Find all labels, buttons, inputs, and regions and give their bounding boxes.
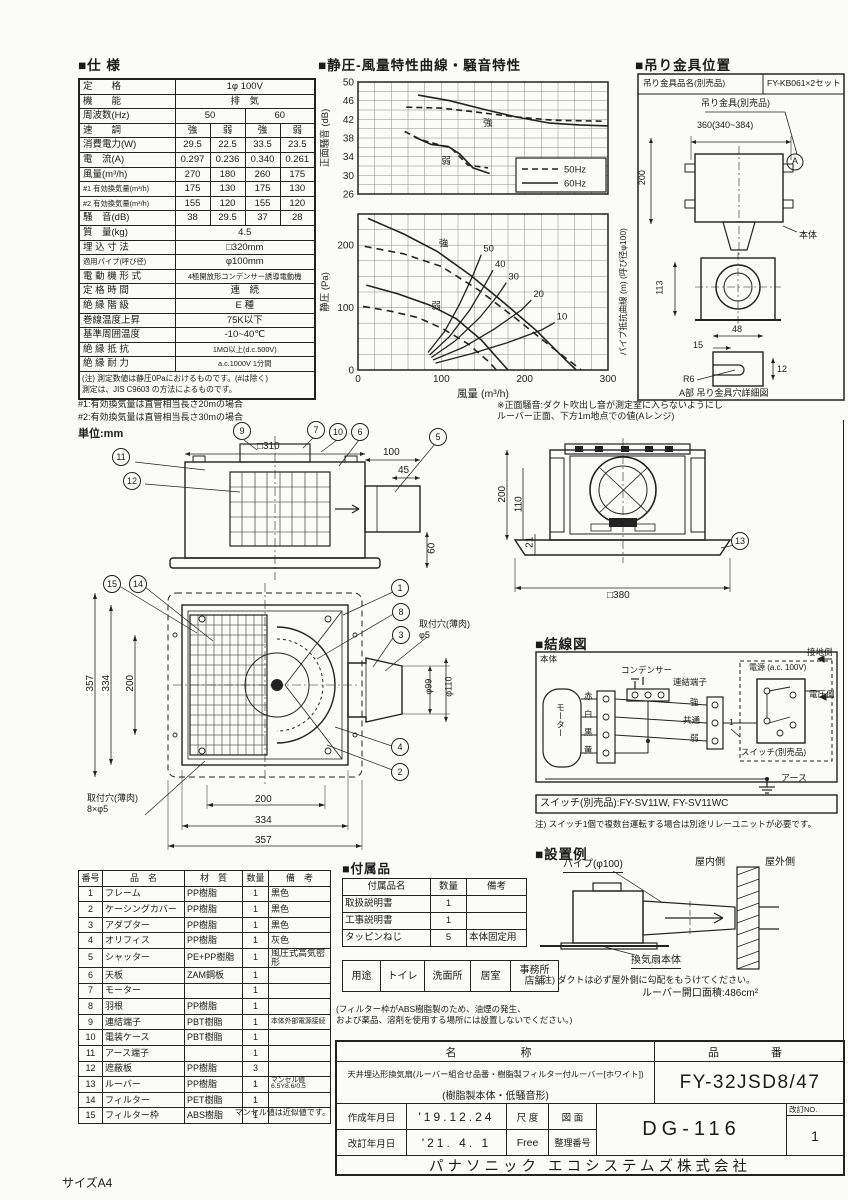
svg-text:50Hz: 50Hz	[564, 165, 586, 176]
table-cell: オリフィス	[103, 933, 185, 949]
dim-200-rear: 200	[497, 486, 510, 503]
parts-table: 番号品 名材 質数量備 考1フレームPP樹脂1黒色2ケーシングカバーPP樹脂1黒…	[78, 870, 331, 1124]
spec-value: 0.297	[175, 152, 210, 167]
spec-value: φ100mm	[175, 255, 315, 270]
table-cell: 7	[79, 983, 103, 999]
spec-label: #1 有効換気量(m³/h)	[79, 182, 175, 197]
dim-380: □380	[607, 590, 630, 603]
part-number-value: FY-32JSD8/47	[655, 1062, 845, 1104]
spec-value: 175	[280, 167, 315, 182]
svg-text:パイプ抵抗曲線 (m) (呼び径φ100): パイプ抵抗曲線 (m) (呼び径φ100)	[618, 228, 628, 356]
dim-h200: 200	[255, 794, 272, 807]
wire-yellow: 黄	[584, 745, 593, 756]
spec-section-title: ■仕 様	[78, 54, 121, 74]
table-cell: PP樹脂	[185, 999, 243, 1015]
dim-h334: 334	[255, 815, 272, 828]
table-cell: 1	[243, 1045, 269, 1061]
table-cell: PP樹脂	[185, 917, 243, 933]
table-cell: 1	[243, 999, 269, 1015]
revision-label: 改訂NO.	[787, 1104, 843, 1116]
rear-view-drawing	[495, 438, 750, 606]
table-cell: 1	[243, 967, 269, 983]
table-cell: ケーシングカバー	[103, 902, 185, 918]
svg-text:38: 38	[343, 134, 355, 145]
svg-text:強: 強	[439, 237, 449, 249]
spec-value: 22.5	[210, 138, 245, 153]
spec-value: E 種	[175, 298, 315, 313]
svg-text:弱: 弱	[431, 301, 441, 312]
spec-label: 巻線温度上昇	[79, 313, 175, 328]
spec-label: 速 調	[79, 123, 175, 138]
table-cell	[269, 1045, 331, 1061]
table-row: タッピンねじ5本体固定用	[343, 930, 527, 947]
table-cell: 1	[243, 1014, 269, 1030]
table-cell: 灰色	[269, 933, 331, 949]
install-note: 注) ダクトは必ず屋外側に勾配をもうけてください。	[543, 975, 755, 986]
accessories-table: 付属品名数量備考取扱説明書1工事説明書1タッピンねじ5本体固定用	[342, 878, 527, 947]
table-cell: 14	[79, 1092, 103, 1108]
table-cell: 11	[79, 1045, 103, 1061]
svg-text:26: 26	[343, 190, 355, 201]
callout-5: 5	[429, 428, 447, 446]
spec-value: 130	[210, 182, 245, 197]
dim-r6: R6	[683, 374, 695, 385]
table-cell: 本体固定用	[467, 930, 527, 947]
table-cell: 9	[79, 1014, 103, 1030]
svg-text:強: 強	[483, 117, 493, 129]
product-name-line1: 天井埋込形換気扇(ルーバー組合せ品番・樹脂製フィルター付ルーバー[ホワイト])	[337, 1062, 655, 1086]
table-cell	[467, 896, 527, 913]
table-cell: フィルター	[103, 1092, 185, 1108]
table-row: 12遮蔽板PP樹脂3	[79, 1061, 331, 1077]
spec-value: 50	[175, 109, 245, 124]
spec-value: 0.236	[210, 152, 245, 167]
dim-21: 21	[524, 537, 537, 548]
spec-value: 29.5	[175, 138, 210, 153]
spec-row: 電 流(A)0.2970.2360.3400.261	[79, 152, 315, 167]
spec-value: a.c.1000V 1分間	[175, 357, 315, 372]
table-cell: 1	[243, 886, 269, 902]
ground-side-label: 接地側	[807, 647, 833, 658]
table-cell: 工事説明書	[343, 913, 431, 930]
spec-label: 質 量(kg)	[79, 225, 175, 240]
spec-value: 0.261	[280, 152, 315, 167]
svg-text:60Hz: 60Hz	[564, 179, 586, 190]
column-header: 備考	[467, 879, 527, 896]
condenser-label: コンデンサー	[621, 665, 672, 676]
table-cell: 用途	[343, 961, 381, 992]
scale-value: Free	[507, 1130, 549, 1156]
table-cell: 羽根	[103, 999, 185, 1015]
table-cell: 1	[243, 902, 269, 918]
spec-value: 155	[245, 196, 280, 211]
table-cell: 1	[243, 1030, 269, 1046]
spec-label: 機 能	[79, 94, 175, 109]
spec-label: 周波数(Hz)	[79, 109, 175, 124]
spec-label: 消費電力(W)	[79, 138, 175, 153]
table-cell: PBT樹脂	[185, 1014, 243, 1030]
spec-row: #2 有効換気量(m³/h)155120155120	[79, 196, 315, 211]
svg-text:20: 20	[533, 289, 544, 300]
dim-60: 60	[426, 543, 439, 554]
table-cell: 風圧式高気密形	[269, 948, 331, 967]
switch-models: スイッチ(別売品):FY-SV11W, FY-SV11WC	[540, 798, 728, 811]
motor-label: モーター	[555, 703, 566, 737]
column-header: 番号	[79, 871, 103, 887]
dim-310: □310	[257, 441, 280, 454]
table-cell: 黒色	[269, 886, 331, 902]
table-row: 10電装ケースPBT樹脂1	[79, 1030, 331, 1046]
page-right-border	[843, 420, 844, 1040]
spec-value: 60	[245, 109, 315, 124]
callout-12: 12	[123, 472, 141, 490]
dim-15: 15	[693, 340, 703, 351]
spec-label: 絶 縁 階 級	[79, 298, 175, 313]
table-cell: 1	[243, 917, 269, 933]
table-cell: タッピンねじ	[343, 930, 431, 947]
table-cell: ルーバー	[103, 1077, 185, 1093]
accessories-title: ■付属品	[342, 858, 391, 877]
spec-value: 28	[280, 211, 315, 226]
table-row: 工事説明書1	[343, 913, 527, 930]
body-label: 本体	[799, 230, 817, 241]
dim-phi99: φ99	[423, 679, 434, 695]
table-cell: PP樹脂	[185, 1077, 243, 1093]
spec-value: 4極開放形コンデンサー誘導電動機	[175, 269, 315, 284]
table-row: 1フレームPP樹脂1黒色	[79, 886, 331, 902]
bracket-part-label: 吊り金具品名(別売品)	[643, 78, 725, 89]
callout-9: 9	[233, 422, 251, 440]
callout-2: 2	[391, 763, 409, 781]
spec-value: 排 気	[175, 94, 315, 109]
callout-6: 6	[351, 423, 369, 441]
svg-text:50: 50	[483, 244, 494, 255]
dim-48: 48	[732, 324, 742, 335]
table-cell: 5	[431, 930, 467, 947]
table-row: 8羽根PP樹脂1	[79, 999, 331, 1015]
speed-high: 強	[690, 697, 699, 708]
column-header: 数量	[243, 871, 269, 887]
dim-12: 12	[777, 364, 787, 375]
front-view-drawing	[85, 575, 475, 870]
callout-3: 3	[392, 626, 410, 644]
svg-text:静圧 (Pa): 静圧 (Pa)	[319, 272, 331, 312]
table-row: 用途トイレ洗面所居室事務所 店舗	[343, 961, 559, 992]
table-row: 4オリフィスPP樹脂1灰色	[79, 933, 331, 949]
column-header: 備 考	[269, 871, 331, 887]
a-mark: A	[792, 156, 798, 167]
table-cell: フレーム	[103, 886, 185, 902]
table-cell: 13	[79, 1077, 103, 1093]
table-cell: シャッター	[103, 948, 185, 967]
column-header: 数量	[431, 879, 467, 896]
spec-value: 75K以下	[175, 313, 315, 328]
column-header: 付属品名	[343, 879, 431, 896]
spec-row: 埋 込 寸 法□320mm	[79, 240, 315, 255]
bracket-part-number: FY-KB061×2セット	[767, 78, 841, 89]
wiring-section: ■結線図	[535, 633, 843, 835]
spec-label: #2 有効換気量(m³/h)	[79, 196, 175, 211]
table-cell: 1	[243, 933, 269, 949]
table-cell	[269, 1092, 331, 1108]
spec-row: 適用パイプ(呼び径)φ100mm	[79, 255, 315, 270]
spec-row: 定 格1φ 100V	[79, 79, 315, 94]
spec-value: 29.5	[210, 211, 245, 226]
spec-label: 絶 縁 耐 力	[79, 357, 175, 372]
dim-45: 45	[398, 465, 409, 478]
spec-label: 定 格	[79, 79, 175, 94]
svg-text:100: 100	[433, 374, 450, 385]
table-cell	[269, 1030, 331, 1046]
company-name: パナソニック エコシステムズ株式会社	[337, 1156, 843, 1174]
table-cell: 取扱説明書	[343, 896, 431, 913]
spec-label: 定 格 時 間	[79, 284, 175, 299]
spec-label: 適用パイプ(呼び径)	[79, 255, 175, 270]
column-header: 材 質	[185, 871, 243, 887]
spec-value: 33.5	[245, 138, 280, 153]
spec-label: 電 動 機 形 式	[79, 269, 175, 284]
front-view: 15 14 1 8 3 4 2 取付穴(薄肉) φ5 φ99 φ110 357 …	[85, 575, 475, 870]
page-size-label: サイズA4	[62, 1176, 112, 1191]
scale-label: 尺 度	[507, 1104, 549, 1130]
spec-row: #1 有効換気量(m³/h)175130175130	[79, 182, 315, 197]
switch-label: スイッチ(別売品)	[741, 747, 806, 758]
table-cell: 本体外部電源接続	[269, 1014, 331, 1030]
table-cell: 天板	[103, 967, 185, 983]
spec-note: (注) 測定数値は静圧0Paにおけるものです。(#は除く) 測定は、JIS C9…	[79, 371, 315, 399]
dim-100: 100	[383, 447, 400, 460]
table-row: 2ケーシングカバーPP樹脂1黒色	[79, 902, 331, 918]
side-view: 11 12 9 7 10 6 5 □310 100 45 60	[95, 420, 465, 595]
callout-1: 1	[391, 579, 409, 597]
wiring-body-label: 本体	[540, 654, 557, 665]
spec-label: 騒 音(dB)	[79, 211, 175, 226]
speed-low: 弱	[690, 733, 699, 744]
table-cell: マンセル値6.5Y8.6/0.5	[269, 1077, 331, 1093]
spec-value: 強	[245, 123, 280, 138]
dim-v334: 334	[101, 675, 114, 692]
spec-value: 弱	[210, 123, 245, 138]
hole-top-label: 取付穴(薄肉) φ5	[419, 619, 470, 642]
table-cell: 3	[243, 1061, 269, 1077]
spec-row: 騒 音(dB)3829.53728	[79, 211, 315, 226]
spec-sheet-page: ■仕 様 定 格1φ 100V機 能排 気周波数(Hz)5060速 調強弱強弱消…	[0, 0, 848, 1200]
spec-value: 1φ 100V	[175, 79, 315, 94]
table-cell: 1	[243, 983, 269, 999]
table-cell: PP樹脂	[185, 1061, 243, 1077]
table-row: 3アダプターPP樹脂1黒色	[79, 917, 331, 933]
dim-113: 113	[655, 280, 666, 294]
svg-text:42: 42	[343, 115, 355, 126]
spec-value: -10~40℃	[175, 328, 315, 343]
part-number-header: 品 番	[655, 1042, 845, 1062]
table-cell: 1	[79, 886, 103, 902]
dim-360: 360(340~384)	[697, 120, 753, 131]
spec-value: 180	[210, 167, 245, 182]
spec-label: 基準周囲温度	[79, 328, 175, 343]
dim-v200: 200	[125, 675, 138, 692]
svg-text:50: 50	[343, 78, 355, 89]
side-view-drawing	[95, 420, 465, 595]
table-cell: PP樹脂	[185, 902, 243, 918]
spec-row: 電 動 機 形 式4極開放形コンデンサー誘導電動機	[79, 269, 315, 284]
svg-text:46: 46	[343, 96, 355, 107]
table-row: 取扱説明書1	[343, 896, 527, 913]
svg-text:10: 10	[557, 312, 568, 323]
dim-110: 110	[514, 496, 527, 512]
callout-7: 7	[307, 421, 325, 439]
table-row: 9連結端子PBT樹脂1本体外部電源接続	[79, 1014, 331, 1030]
svg-text:100: 100	[337, 303, 354, 314]
table-row: 7モーター1	[79, 983, 331, 999]
table-cell	[269, 999, 331, 1015]
terminal-one: 1	[729, 717, 734, 728]
table-cell: PBT樹脂	[185, 1030, 243, 1046]
created-date-label: 作成年月日	[337, 1104, 407, 1130]
chart-section-title: ■静圧-風量特性曲線・騒音特性	[318, 54, 521, 74]
table-cell	[269, 1061, 331, 1077]
spec-row: 絶 縁 階 級E 種	[79, 298, 315, 313]
table-cell: 黒色	[269, 917, 331, 933]
spec-value: 4.5	[175, 225, 315, 240]
table-cell	[185, 1045, 243, 1061]
table-cell: 事務所 店舗	[511, 961, 559, 992]
callout-4: 4	[391, 738, 409, 756]
spec-value: 0.340	[245, 152, 280, 167]
svg-text:0: 0	[348, 366, 354, 377]
terminal-label: 連結端子	[673, 677, 707, 688]
table-row: 5シャッターPE+PP樹脂1風圧式高気密形	[79, 948, 331, 967]
callout-8: 8	[392, 603, 410, 621]
table-cell: PET樹脂	[185, 1092, 243, 1108]
table-cell: PP樹脂	[185, 886, 243, 902]
table-cell: 2	[79, 902, 103, 918]
table-cell: PP樹脂	[185, 933, 243, 949]
spec-value: 37	[245, 211, 280, 226]
bracket-detail-caption: A部 吊り金具穴詳細図	[679, 388, 769, 399]
power-label: 電源 (a.c. 100V)	[749, 663, 806, 673]
table-cell: ZAM鋼板	[185, 967, 243, 983]
callout-11: 11	[112, 448, 130, 466]
rear-view: 200 110 21 □380 13	[495, 438, 750, 606]
ref-number-label: 整理番号	[549, 1130, 597, 1156]
spec-value: 強	[175, 123, 210, 138]
table-cell: アダプター	[103, 917, 185, 933]
spec-value: 23.5	[280, 138, 315, 153]
spec-row: 絶 縁 耐 力a.c.1000V 1分間	[79, 357, 315, 372]
spec-row: 絶 縁 抵 抗1MΩ以上(d.c.500V)	[79, 342, 315, 357]
fan-body-label: 換気扇本体	[631, 955, 681, 969]
table-cell: 洗面所	[425, 961, 471, 992]
voltage-side-label: 電圧側	[809, 689, 835, 700]
product-name-line2: (樹脂製本体・低騒音形)	[337, 1086, 655, 1104]
table-cell: 1	[243, 948, 269, 967]
spec-label: 風量(m³/h)	[79, 167, 175, 182]
spec-value: 38	[175, 211, 210, 226]
bracket-name-label: 吊り金具(別売品)	[701, 98, 770, 109]
svg-text:30: 30	[343, 171, 355, 182]
callout-15: 15	[103, 575, 121, 593]
spec-value: □320mm	[175, 240, 315, 255]
table-cell: 1	[243, 1092, 269, 1108]
spec-value: 175	[175, 182, 210, 197]
spec-row: 機 能排 気	[79, 94, 315, 109]
svg-text:40: 40	[495, 259, 506, 270]
spec-value: 260	[245, 167, 280, 182]
svg-text:300: 300	[600, 374, 617, 385]
drawing-label: 図 面	[549, 1104, 597, 1130]
table-cell: 電装ケース	[103, 1030, 185, 1046]
pq-chart: 01002000100200300強弱5040302010静圧 (Pa)パイプ抵…	[318, 212, 638, 412]
revised-date-label: 改訂年月日	[337, 1130, 407, 1156]
dim-phi110: φ110	[443, 677, 454, 697]
install-section: ■設置例 パイプ(φ100) 屋内側 屋外側 換気扇本体 注) ダクトは必ず屋外…	[535, 843, 843, 995]
table-cell	[269, 983, 331, 999]
created-date-value: '19.12.24	[407, 1104, 507, 1130]
spec-row: 速 調強弱強弱	[79, 123, 315, 138]
revised-date-value: '21. 4. 1	[407, 1130, 507, 1156]
bracket-section: ■吊り金具位置	[635, 54, 847, 404]
title-block: 名 称 品 番 天井埋込形換気扇(ルーバー組合せ品番・樹脂製フィルター付ルーバー…	[335, 1040, 845, 1176]
table-cell: トイレ	[381, 961, 425, 992]
svg-text:30: 30	[508, 272, 519, 283]
dim-v357: 357	[85, 675, 98, 692]
table-row: 6天板ZAM鋼板1	[79, 967, 331, 983]
table-cell: 5	[79, 948, 103, 967]
usage-table: 用途トイレ洗面所居室事務所 店舗	[342, 960, 559, 992]
dim-200-bracket: 200	[637, 170, 648, 185]
table-cell: 1	[243, 1077, 269, 1093]
wire-white: 白	[584, 709, 593, 720]
table-cell: 6	[79, 967, 103, 983]
speed-common: 共通	[683, 715, 700, 726]
outdoor-label: 屋外側	[765, 857, 795, 870]
spec-row: 巻線温度上昇75K以下	[79, 313, 315, 328]
svg-text:0: 0	[355, 374, 361, 385]
wiring-note: 注) スイッチ1個で複数台運転する場合は別途リレーユニットが必要です。	[535, 819, 816, 830]
table-cell: 1	[431, 913, 467, 930]
table-cell: アース端子	[103, 1045, 185, 1061]
svg-text:正面騒音 (dB): 正面騒音 (dB)	[319, 109, 331, 168]
wire-red: 赤	[584, 691, 593, 702]
spec-value: 連 続	[175, 284, 315, 299]
table-cell: 8	[79, 999, 103, 1015]
hole-bottom-label: 取付穴(薄肉) 8×φ5	[87, 793, 138, 816]
spec-value: 155	[175, 196, 210, 211]
spec-row: 風量(m³/h)270180260175	[79, 167, 315, 182]
spec-value: 120	[210, 196, 245, 211]
callout-13: 13	[731, 532, 749, 550]
table-row: 11アース端子1	[79, 1045, 331, 1061]
table-cell: 12	[79, 1061, 103, 1077]
table-cell	[185, 983, 243, 999]
name-header: 名 称	[337, 1042, 655, 1062]
louver-area-label: ルーバー開口面積:486cm²	[642, 988, 758, 1001]
table-cell: PE+PP樹脂	[185, 948, 243, 967]
callout-10: 10	[329, 423, 347, 441]
svg-text:200: 200	[516, 374, 533, 385]
dim-h357: 357	[255, 835, 272, 848]
indoor-label: 屋内側	[695, 857, 725, 870]
spec-footnote-1: #1:有効換気量は直管相当長さ20mの場合	[78, 399, 243, 410]
revision-number: 1	[787, 1116, 843, 1156]
table-cell	[269, 967, 331, 983]
column-header: 品 名	[103, 871, 185, 887]
table-cell: 4	[79, 933, 103, 949]
spec-value: 1MΩ以上(d.c.500V)	[175, 342, 315, 357]
callout-14: 14	[129, 575, 147, 593]
spec-row: 質 量(kg)4.5	[79, 225, 315, 240]
